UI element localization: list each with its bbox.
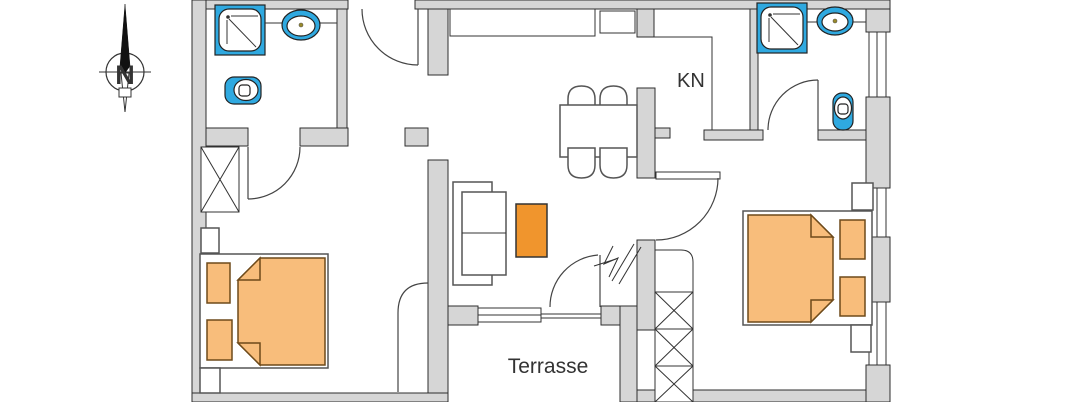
living-room [453,182,547,285]
pillow [207,263,230,303]
stairs-hatch-boxes [655,292,693,402]
bedroom-right [743,183,873,352]
toilet-icon [225,77,261,104]
wall-right-4 [866,365,890,402]
washbasin-icon [265,10,337,40]
wall-bath-right-bottom-b [818,130,866,140]
shower-icon [215,5,265,55]
wall-kitchen-top [637,9,654,37]
wall-top-right [415,0,890,9]
door-swing-symbol [594,244,641,284]
nightstand [200,368,220,393]
shower-icon [757,3,807,53]
wall-bedroom-right-left [637,240,655,330]
terrace-door [550,255,600,307]
wardrobe-icon [201,147,239,212]
double-bed-icon [743,211,872,325]
wall-right-1 [866,9,890,32]
compass: N [99,4,151,112]
wall-living-left [428,160,448,393]
chair-icon [600,148,627,178]
wall-hall-right-upper [428,9,448,75]
wall-bedroom-left-top-a [206,128,248,146]
washbasin-icon [807,7,866,35]
sliding-window [478,308,601,322]
wall-terrace-right [620,306,637,402]
bathroom-left-door [248,147,300,199]
kitchen-appliance [600,11,635,33]
bedroom-left-terrace-door [398,283,428,392]
north-label: N [115,60,135,90]
stairs-icon [655,250,693,402]
entry-door [362,9,418,65]
nightstand [201,228,219,253]
bathroom-right-door [768,80,818,130]
pillow [840,277,865,316]
wall-bath-left-right [337,9,347,130]
floor-plan-page: N [0,0,1070,402]
dining-area [560,86,637,178]
wall-dining-right-stub [655,128,670,138]
floor-plan: N [0,0,1070,402]
kitchen-label: KN [677,70,705,92]
sofa-icon [453,182,506,285]
chair-icon [568,148,595,178]
wall-bottom-left [192,393,448,402]
window-right-top [869,32,886,97]
toilet-icon [833,93,853,130]
wall-bedroom-left-top-b [300,128,348,146]
terrace-label: Terrasse [508,355,589,378]
bathroom-left [215,5,337,104]
wall-right-2 [866,97,890,188]
wall-bath-right-bottom-a [704,130,763,140]
double-bed-icon [200,254,328,368]
coffee-table-icon [516,204,547,257]
pillow [840,220,865,259]
pillow [207,320,232,360]
wall-dining-right [637,88,655,178]
nightstand [851,325,871,352]
wall-bedroom-left-top-c [405,128,428,146]
bathroom-right [757,3,866,130]
doors [248,9,818,392]
nightstand [852,183,873,210]
kitchen-counter [450,9,595,36]
bedroom-right-door [656,172,720,240]
terrace: Terrasse [478,308,601,378]
wall-terrace-left-stub [448,306,478,325]
wall-terrace-right-stub [601,306,620,325]
bedroom-left [200,147,328,393]
